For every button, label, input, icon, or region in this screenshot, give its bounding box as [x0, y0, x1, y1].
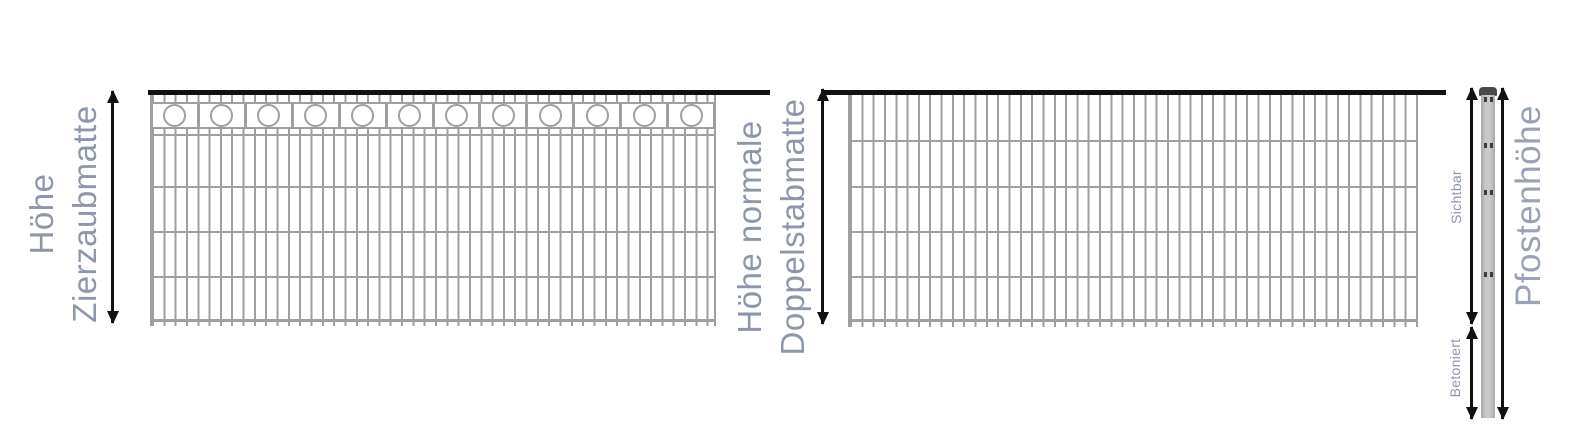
ornament-ring-icon	[492, 104, 515, 127]
ornament-ring-icon	[304, 104, 327, 127]
label-hoehe-zierzaubmatte: Höhe Zierzaubmatte	[20, 64, 106, 364]
ornament-ring-icon	[398, 104, 421, 127]
label-sichtbar: Sichtbar	[1448, 137, 1464, 257]
ornament-ring-icon	[351, 104, 374, 127]
ornament-ring-icon	[539, 104, 562, 127]
post-clip-mark	[1484, 272, 1493, 277]
label-betoniert: Betoniert	[1447, 308, 1463, 425]
ring-cell	[478, 104, 525, 127]
label-line: Zierzaubmatte	[63, 64, 106, 364]
wire-row	[152, 276, 714, 278]
ring-cell	[338, 104, 385, 127]
ornament-ring-icon	[210, 104, 233, 127]
wire-row	[850, 186, 1416, 188]
zierzaubmatte-height-arrow-icon	[111, 91, 114, 323]
ring-cell	[572, 104, 619, 127]
label-pfostenhoehe: Pfostenhöhe	[1507, 56, 1551, 356]
label-line: Doppelstabmatte	[771, 77, 814, 377]
post-clip-mark	[1484, 143, 1493, 148]
ornament-ring-icon	[680, 104, 703, 127]
label-line: Höhe	[20, 64, 63, 364]
left-panel-top-strip	[150, 95, 716, 104]
betoniert-arrow-icon	[1470, 327, 1473, 419]
ring-cell	[197, 104, 244, 127]
wire-row	[850, 276, 1416, 278]
ring-cell	[244, 104, 291, 127]
ring-cell	[385, 104, 432, 127]
right-panel-grid	[848, 95, 1418, 327]
ring-cell	[291, 104, 338, 127]
doppelstabmatte-height-arrow-icon	[821, 89, 824, 324]
label-hoehe-doppelstabmatte: Höhe normale Doppelstabmatte	[728, 77, 814, 377]
ring-cell	[150, 104, 197, 127]
ornament-ring-icon	[586, 104, 609, 127]
ring-cell	[525, 104, 572, 127]
ornament-ring-icon	[163, 104, 186, 127]
wire-row	[850, 140, 1416, 142]
fence-post	[1481, 95, 1495, 418]
ring-cell	[432, 104, 479, 127]
left-panel-grid	[150, 136, 716, 326]
wire-row	[850, 231, 1416, 233]
wire-row	[152, 319, 714, 322]
ring-cell	[619, 104, 666, 127]
ornament-ring-icon	[257, 104, 280, 127]
label-line: Höhe normale	[728, 77, 771, 377]
wire-row	[152, 186, 714, 188]
post-clip-mark	[1484, 97, 1493, 102]
wire-row	[850, 319, 1416, 322]
sichtbar-arrow-icon	[1470, 88, 1473, 324]
post-clip-mark	[1484, 190, 1493, 195]
left-panel-mid-strip	[150, 127, 716, 136]
pfostenhoehe-arrow-icon	[1501, 88, 1504, 419]
fence-height-diagram: Höhe Zierzaubmatte Höhe normale Doppelst…	[0, 0, 1587, 425]
left-panel-ring-band	[150, 104, 716, 127]
ornament-ring-icon	[633, 104, 656, 127]
ring-cell	[666, 104, 716, 127]
ornament-ring-icon	[445, 104, 468, 127]
wire-row	[152, 231, 714, 233]
